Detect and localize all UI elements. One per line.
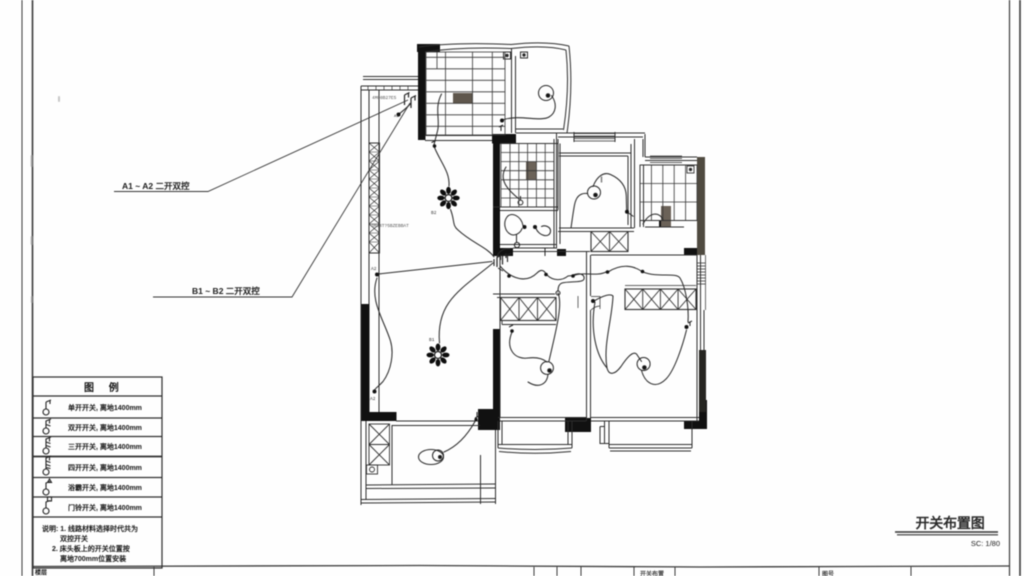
svg-text:开关布置: 开关布置 [640, 570, 664, 576]
svg-text:B1 ~ B2 二开双控: B1 ~ B2 二开双控 [192, 286, 260, 296]
svg-text:3M34T?5BZEBBAT: 3M34T?5BZEBBAT [371, 223, 409, 229]
svg-text:2. 床头板上的开关位置按: 2. 床头板上的开关位置按 [52, 544, 130, 553]
svg-text:B2: B2 [431, 210, 437, 216]
svg-text:四开开关, 离地1400mm: 四开开关, 离地1400mm [68, 463, 142, 472]
svg-text:A1: A1 [394, 115, 399, 119]
svg-text:SC: 1/80: SC: 1/80 [971, 539, 1000, 548]
svg-text:楼层: 楼层 [35, 569, 47, 576]
svg-text:三开开关, 离地1400mm: 三开开关, 离地1400mm [68, 442, 142, 451]
svg-text:A2: A2 [370, 396, 376, 402]
svg-text:离地700mm位置安装: 离地700mm位置安装 [60, 554, 126, 563]
svg-text:4M08B27E5: 4M08B27E5 [372, 95, 397, 101]
svg-text:浴霸开关, 离地1400mm: 浴霸开关, 离地1400mm [68, 483, 142, 492]
svg-text:开关布置图: 开关布置图 [916, 515, 985, 531]
svg-text:图 例: 图 例 [84, 381, 125, 394]
svg-text:双开开关, 离地1400mm: 双开开关, 离地1400mm [68, 423, 142, 432]
svg-text:图号: 图号 [822, 570, 834, 576]
svg-text:单开开关, 离地1400mm: 单开开关, 离地1400mm [68, 403, 142, 412]
svg-text:说明: 1. 线路材料选择时代共为: 说明: 1. 线路材料选择时代共为 [42, 524, 138, 533]
svg-text:A1 ~ A2 二开双控: A1 ~ A2 二开双控 [122, 181, 190, 191]
svg-text:B1: B1 [429, 337, 435, 343]
svg-text:门铃开关, 离地1400mm: 门铃开关, 离地1400mm [68, 503, 142, 512]
svg-text:双控开关: 双控开关 [60, 534, 88, 543]
svg-text:A2: A2 [371, 266, 377, 272]
